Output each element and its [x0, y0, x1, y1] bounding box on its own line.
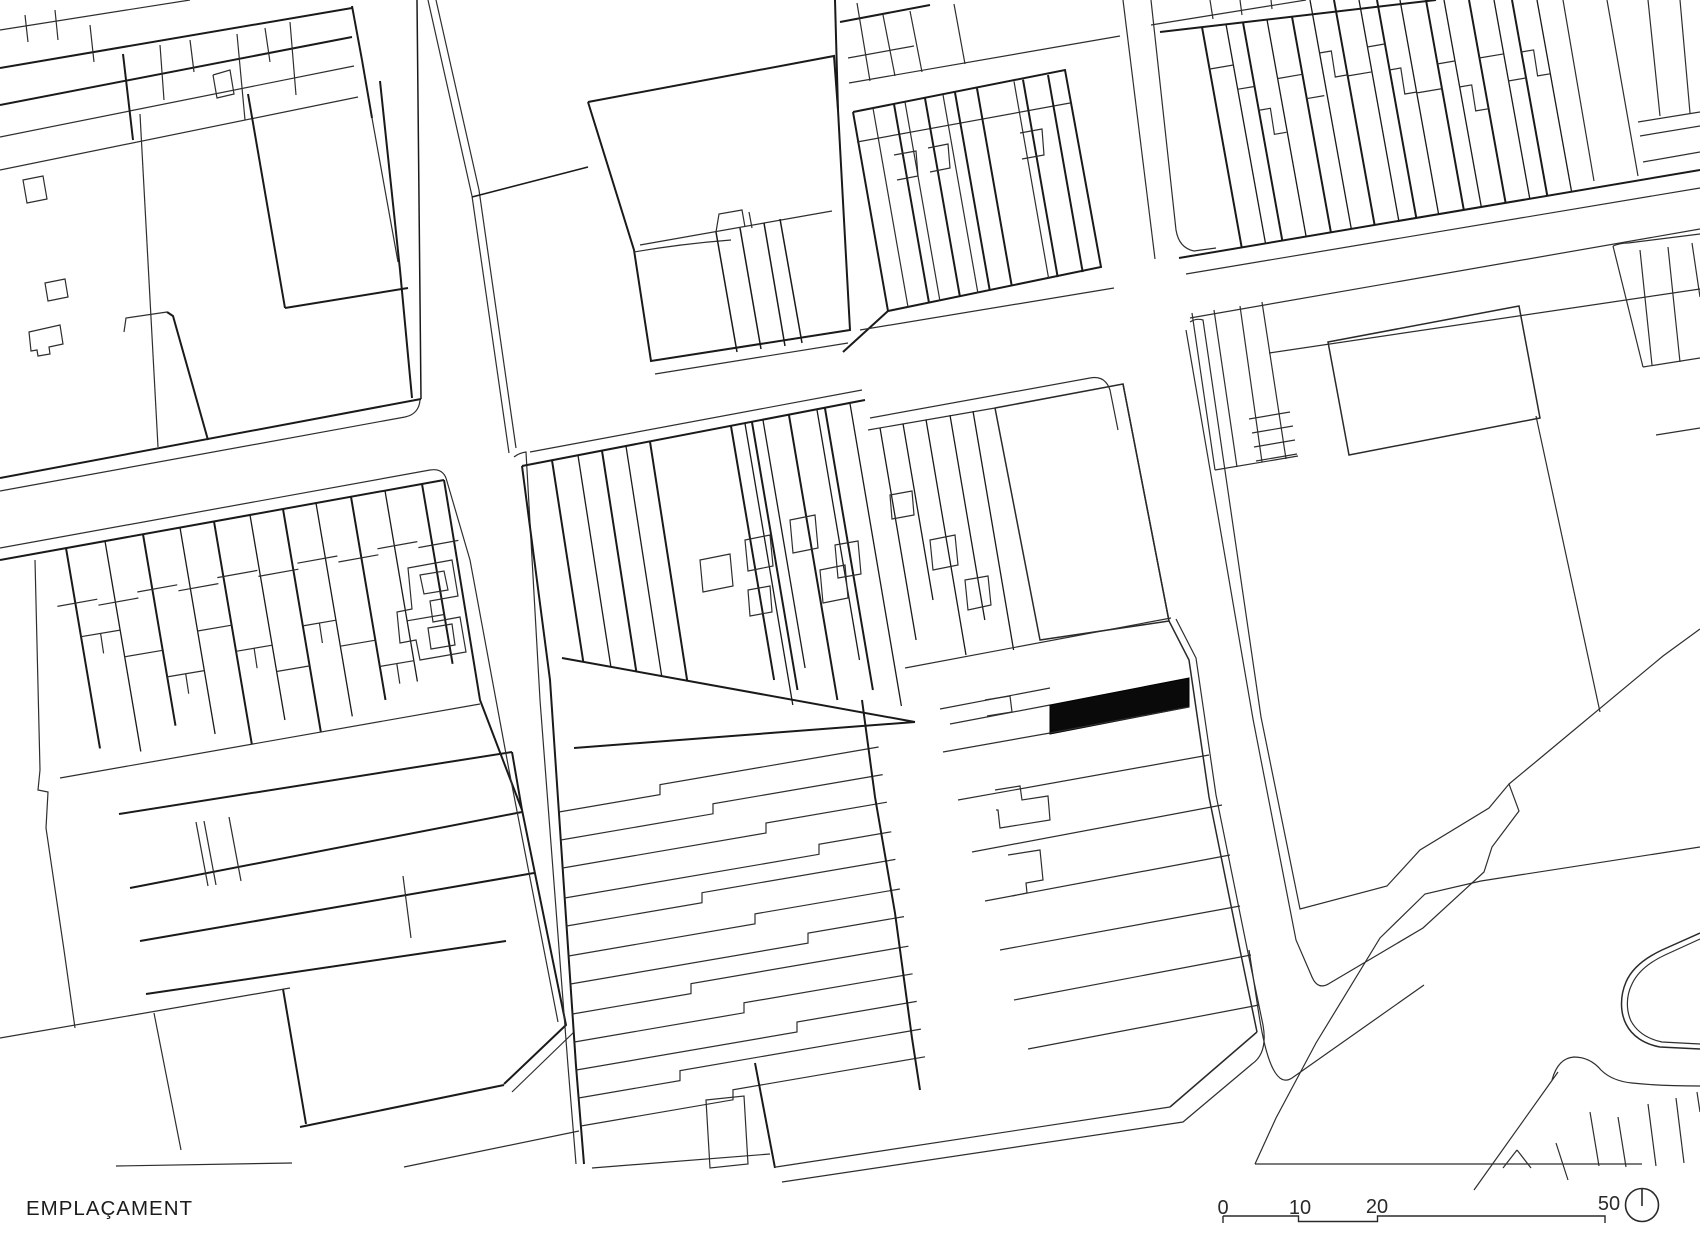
svg-text:50: 50	[1598, 1193, 1620, 1215]
svg-text:0: 0	[1217, 1197, 1228, 1219]
svg-text:10: 10	[1289, 1197, 1311, 1219]
svg-text:20: 20	[1366, 1196, 1388, 1218]
svg-text:EMPLAÇAMENT: EMPLAÇAMENT	[26, 1197, 193, 1220]
